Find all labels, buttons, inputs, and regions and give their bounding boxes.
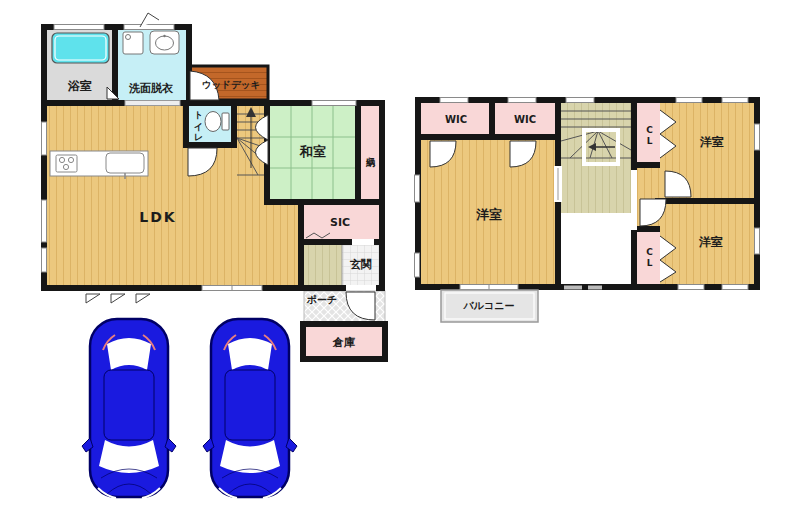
bathtub-icon [52, 33, 109, 63]
label-japanese-room: 和室 [300, 145, 326, 158]
label-closet-1f: 収納 [366, 150, 375, 152]
label-porch: ポーチ [307, 295, 337, 305]
label-storage: 倉庫 [333, 337, 355, 348]
room-closet-1f [361, 106, 379, 199]
label-bedroom-left: 洋室 [476, 208, 502, 221]
label-wic-1: WIC [445, 115, 467, 125]
shutter-marks [86, 294, 150, 303]
toilet-tank-icon [222, 113, 229, 130]
label-ldk: LDK [139, 210, 176, 224]
floorplan-canvas: 浴室 洗面脱衣 ウッドデッキ トイレ 和室 収納 LDK SIC 玄関 ポーチ … [0, 0, 800, 525]
label-cl-top: CL [645, 125, 654, 147]
label-balcony: バルコニー [464, 301, 515, 311]
label-bath: 浴室 [68, 80, 92, 92]
label-bedroom-right-top: 洋室 [700, 136, 724, 148]
label-cl-bottom: CL [645, 247, 654, 269]
parking [82, 319, 297, 498]
label-entrance: 玄関 [350, 259, 372, 270]
label-wic-2: WIC [514, 115, 536, 125]
label-sic: SIC [330, 217, 350, 228]
sliding-door-washroom [125, 101, 180, 106]
toilet-icon [205, 112, 221, 132]
label-washroom: 洗面脱衣 [129, 83, 173, 94]
floor-2 [415, 97, 761, 322]
floorplan-drawing [0, 0, 800, 525]
kitchen-sink-icon [106, 153, 144, 173]
car-2 [203, 319, 297, 498]
void-area [561, 213, 631, 284]
entrance-hall-floor [304, 245, 342, 285]
label-bedroom-right-bottom: 洋室 [699, 236, 723, 248]
label-toilet: トイレ [194, 104, 203, 138]
car-1 [82, 319, 176, 498]
floor-1 [41, 13, 388, 362]
label-wood-deck: ウッドデッキ [202, 80, 260, 90]
sink-icon [150, 31, 179, 54]
